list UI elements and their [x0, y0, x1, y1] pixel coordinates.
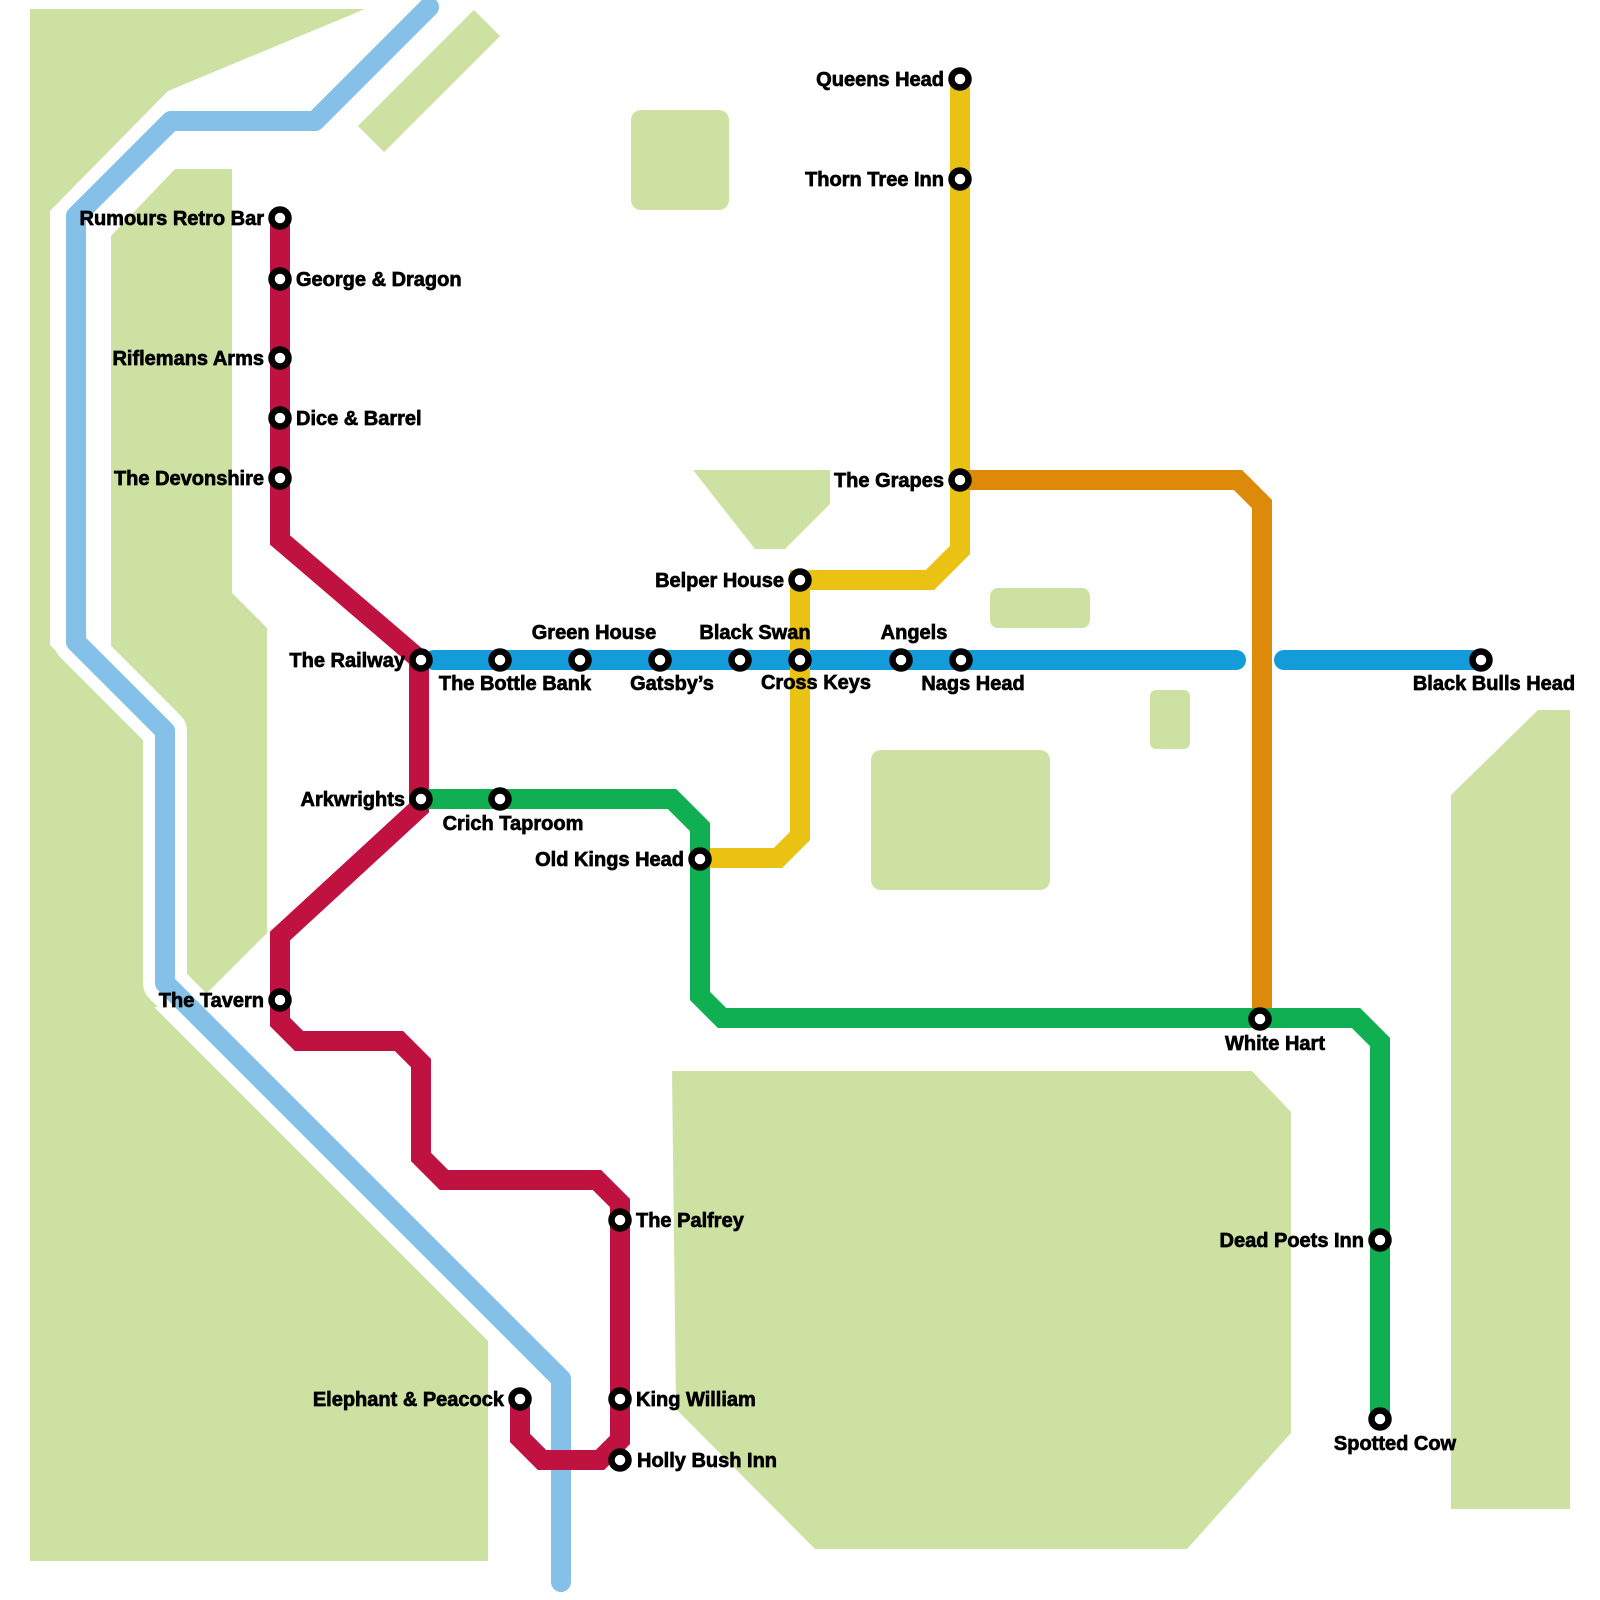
svg-text:Angels: Angels	[881, 622, 948, 644]
svg-text:Gatsby’s: Gatsby’s	[630, 673, 714, 695]
svg-text:Rumours Retro Bar: Rumours Retro Bar	[80, 208, 265, 230]
svg-text:Crich Taproom: Crich Taproom	[443, 813, 584, 835]
svg-text:Holly Bush Inn: Holly Bush Inn	[637, 1450, 777, 1472]
svg-text:Spotted Cow: Spotted Cow	[1334, 1433, 1457, 1455]
svg-text:Riflemans Arms: Riflemans Arms	[112, 348, 264, 370]
svg-text:Queens Head: Queens Head	[816, 69, 944, 91]
svg-text:Thorn Tree Inn: Thorn Tree Inn	[805, 169, 944, 191]
svg-text:Old Kings Head: Old Kings Head	[535, 849, 684, 871]
svg-text:Green House: Green House	[532, 622, 656, 644]
svg-text:The Tavern: The Tavern	[159, 990, 264, 1012]
svg-text:Arkwrights: Arkwrights	[301, 789, 405, 811]
svg-text:The Bottle Bank: The Bottle Bank	[439, 673, 592, 695]
svg-text:Black Swan: Black Swan	[699, 622, 810, 644]
svg-text:The Railway: The Railway	[289, 650, 405, 672]
svg-text:Nags Head: Nags Head	[921, 673, 1024, 695]
svg-text:Belper House: Belper House	[655, 570, 784, 592]
svg-text:Dice & Barrel: Dice & Barrel	[296, 408, 422, 430]
svg-text:The Grapes: The Grapes	[834, 470, 944, 492]
svg-text:The Devonshire: The Devonshire	[114, 468, 264, 490]
svg-text:The Palfrey: The Palfrey	[636, 1210, 745, 1232]
svg-text:Cross Keys: Cross Keys	[761, 672, 871, 694]
svg-text:George & Dragon: George & Dragon	[296, 269, 462, 291]
svg-text:Dead Poets Inn: Dead Poets Inn	[1220, 1230, 1364, 1252]
svg-text:King William: King William	[636, 1389, 756, 1411]
svg-text:White Hart: White Hart	[1225, 1033, 1325, 1055]
svg-text:Black Bulls Head: Black Bulls Head	[1413, 673, 1575, 695]
svg-text:Elephant & Peacock: Elephant & Peacock	[313, 1389, 505, 1411]
